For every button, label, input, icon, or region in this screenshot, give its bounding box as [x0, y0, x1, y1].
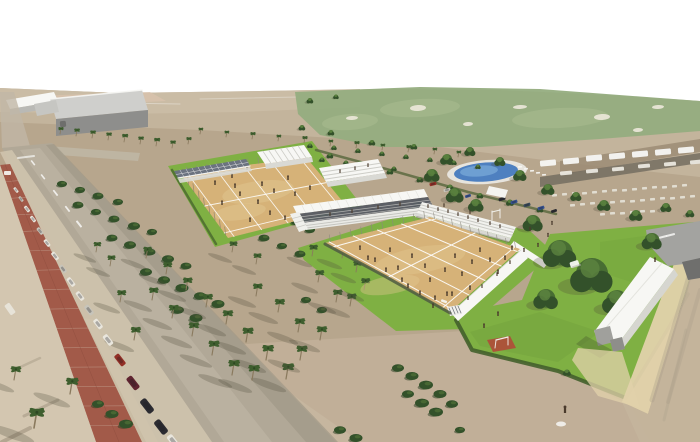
- render-canvas: [0, 0, 700, 442]
- road-sign: [4, 171, 11, 175]
- aerial-render: [0, 0, 700, 442]
- walker-bottom: [564, 405, 567, 413]
- industrial-door: [60, 121, 67, 128]
- walker-blob: [556, 422, 566, 427]
